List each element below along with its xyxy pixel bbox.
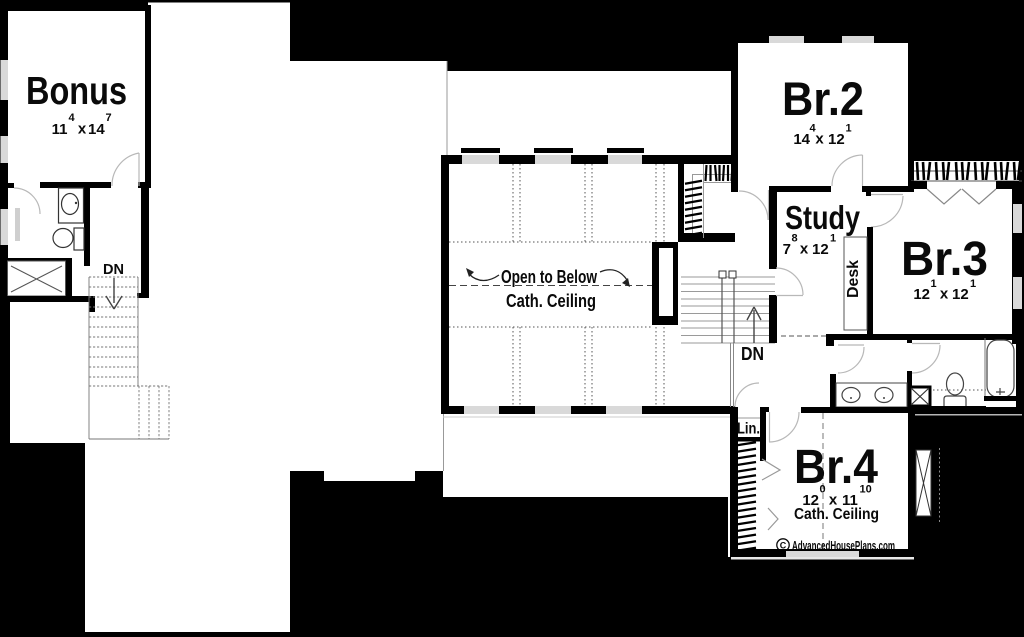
svg-text:1: 1: [846, 123, 852, 135]
svg-text:1: 1: [830, 233, 836, 245]
svg-text:12: 12: [952, 286, 969, 303]
svg-text:11: 11: [52, 121, 68, 138]
svg-text:10: 10: [860, 484, 872, 496]
svg-text:x: x: [815, 131, 824, 148]
svg-text:x: x: [940, 286, 949, 303]
svg-text:DN: DN: [103, 261, 124, 278]
svg-text:Open to Below: Open to Below: [501, 267, 598, 287]
svg-text:12: 12: [828, 131, 845, 148]
svg-text:14: 14: [793, 131, 810, 148]
svg-text:1: 1: [970, 278, 976, 290]
svg-text:Cath. Ceiling: Cath. Ceiling: [794, 506, 879, 523]
svg-text:Lin.: Lin.: [737, 421, 760, 438]
svg-text:8: 8: [792, 233, 798, 245]
svg-text:x: x: [800, 241, 809, 258]
svg-text:7: 7: [106, 112, 112, 124]
svg-text:1: 1: [931, 278, 937, 290]
svg-text:Desk: Desk: [845, 260, 862, 298]
svg-text:DN: DN: [741, 344, 764, 364]
svg-text:x: x: [78, 121, 87, 138]
svg-text:Cath. Ceiling: Cath. Ceiling: [506, 291, 596, 311]
svg-text:Bonus: Bonus: [26, 70, 127, 113]
svg-text:4: 4: [69, 112, 76, 124]
svg-text:0: 0: [820, 484, 826, 496]
svg-text:Study: Study: [785, 199, 861, 236]
svg-text:12: 12: [913, 286, 930, 303]
svg-text:Br.2: Br.2: [782, 72, 864, 125]
svg-text:14: 14: [88, 121, 105, 138]
svg-text:7: 7: [783, 241, 791, 258]
svg-text:12: 12: [812, 241, 829, 258]
